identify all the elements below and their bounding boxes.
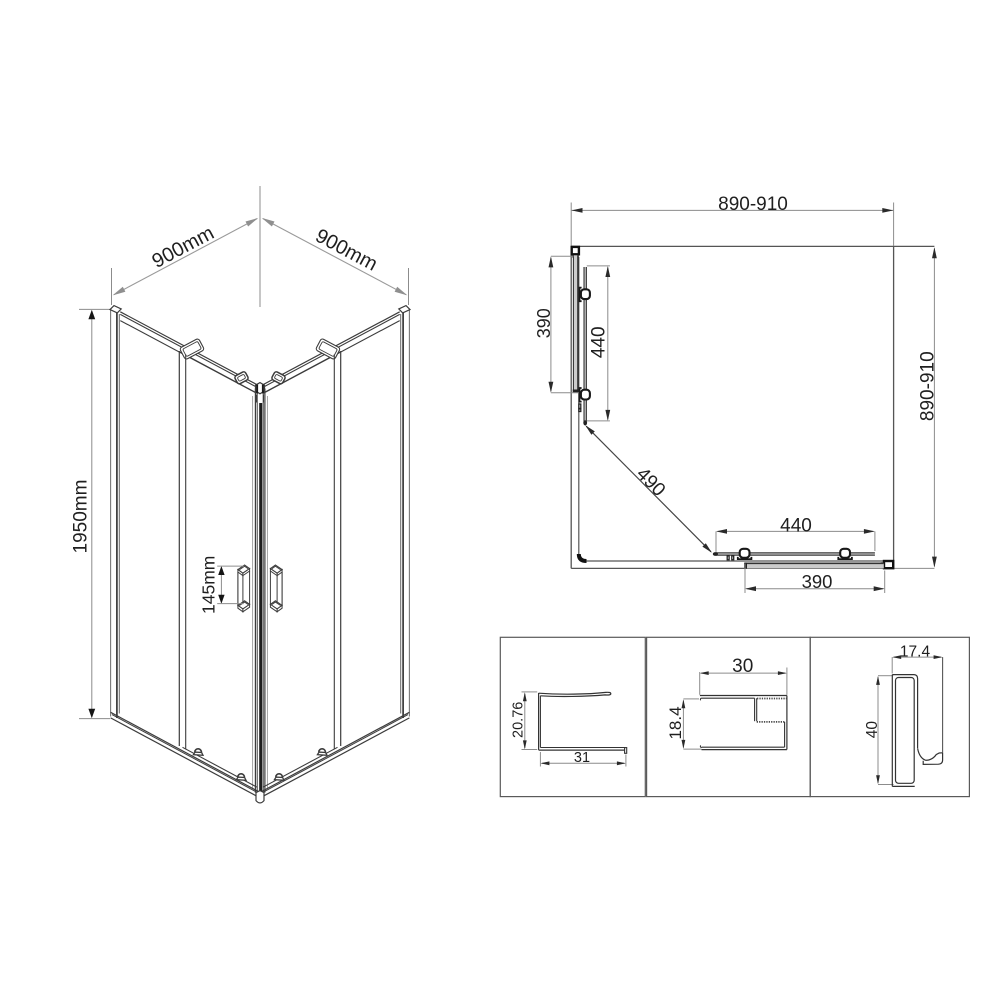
svg-text:390: 390	[534, 308, 554, 338]
svg-text:18.4: 18.4	[666, 706, 685, 739]
svg-text:890-910: 890-910	[718, 194, 788, 215]
svg-text:890-910: 890-910	[918, 351, 939, 421]
svg-text:31: 31	[574, 750, 590, 766]
svg-text:390: 390	[802, 571, 833, 592]
svg-text:17.4: 17.4	[900, 643, 931, 660]
svg-text:145mm: 145mm	[199, 556, 219, 614]
svg-text:440: 440	[780, 516, 812, 537]
svg-text:40: 40	[864, 721, 881, 739]
svg-text:440: 440	[588, 326, 609, 358]
svg-text:20.76: 20.76	[511, 702, 527, 738]
svg-text:1950mm: 1950mm	[71, 480, 92, 554]
svg-text:30: 30	[732, 656, 753, 677]
